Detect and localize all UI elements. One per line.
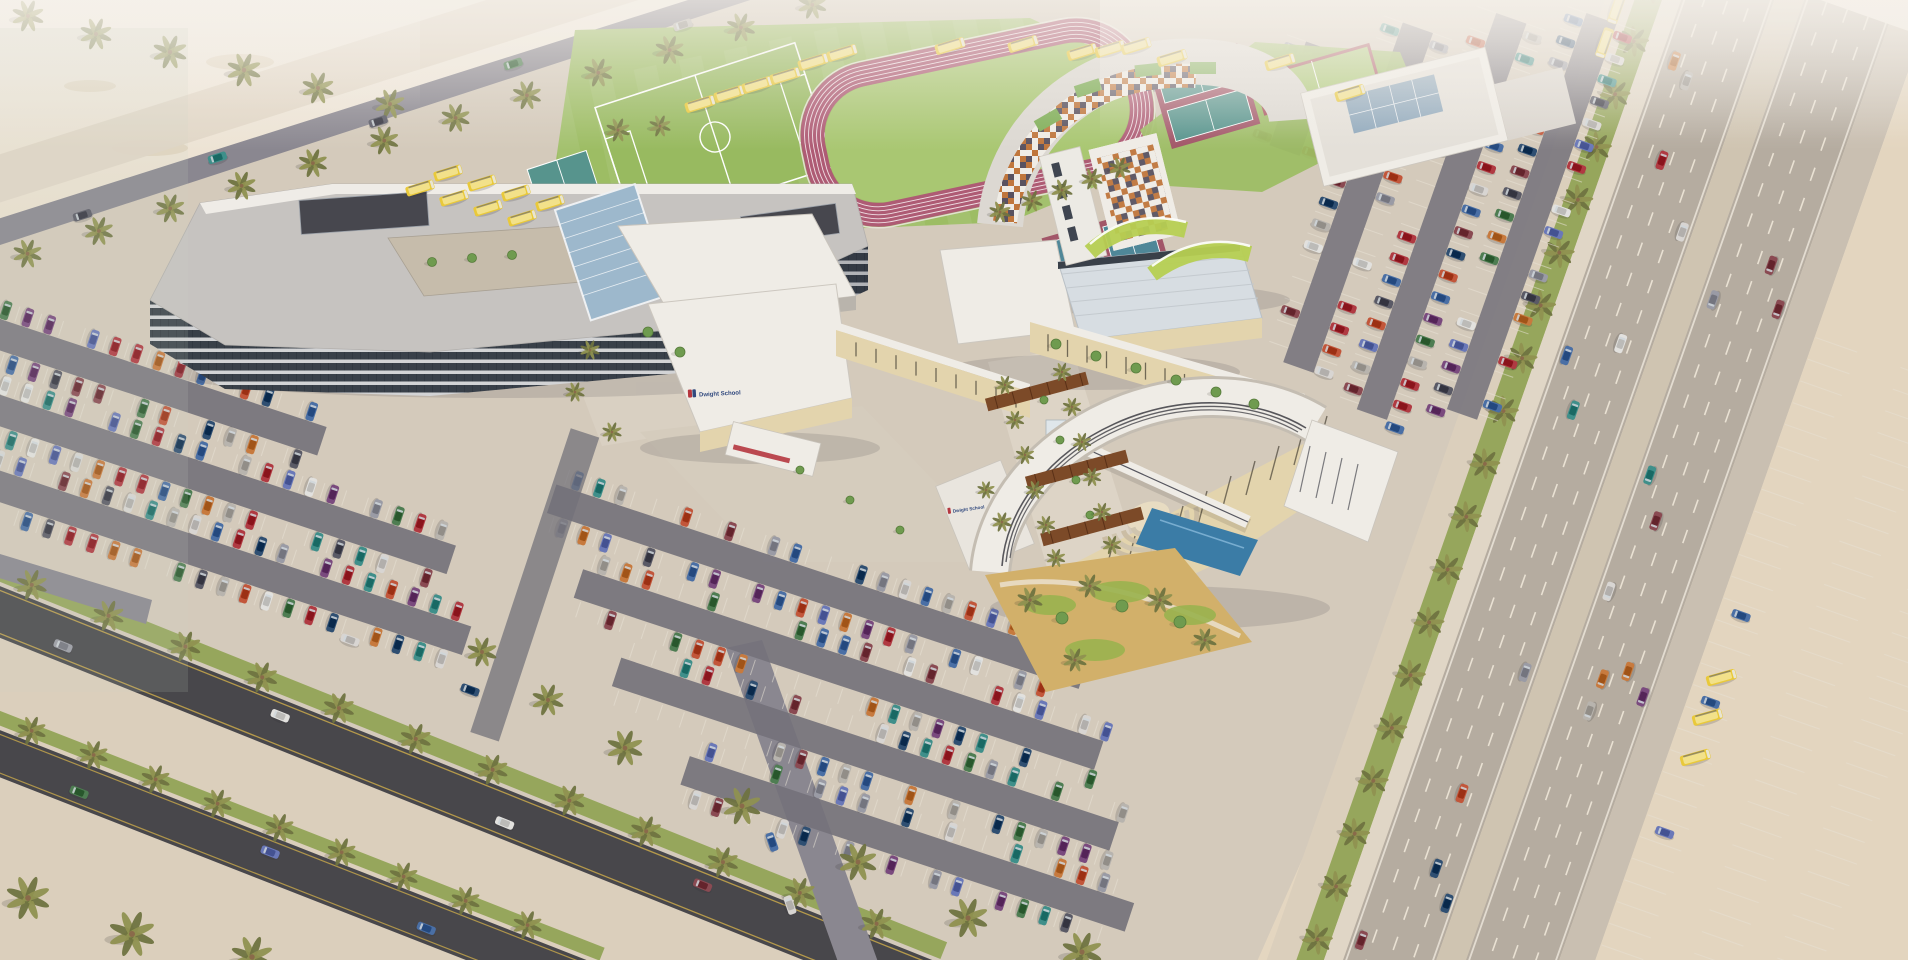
campus-aerial-rendering: Dwight School Dwight School	[0, 0, 1908, 960]
palm-crown	[154, 777, 158, 781]
tree-canopy	[846, 496, 854, 504]
rendered-image: Dwight School Dwight School	[0, 0, 1908, 960]
palm-crown	[574, 391, 577, 394]
tree-canopy	[1072, 476, 1080, 484]
tree-canopy	[468, 254, 477, 263]
palm-crown	[1061, 371, 1063, 373]
palm-crown	[965, 915, 970, 920]
tree-canopy	[1249, 399, 1259, 409]
palm-crown	[491, 768, 495, 772]
palm-crown	[1031, 200, 1034, 203]
palm-crown	[875, 922, 879, 926]
palm-crown	[1079, 949, 1084, 954]
palm-crown	[1091, 178, 1094, 181]
tree-canopy	[1056, 436, 1064, 444]
palm-crown	[623, 746, 628, 751]
palm-crown	[1119, 167, 1122, 170]
tree-canopy	[508, 251, 517, 260]
palm-crown	[1045, 524, 1047, 526]
palm-crown	[1004, 384, 1006, 386]
tree-canopy	[1051, 339, 1061, 349]
palm-crown	[985, 489, 987, 491]
tree-canopy	[1116, 600, 1128, 612]
palm-crown	[129, 931, 135, 937]
palm-crown	[311, 161, 315, 165]
palm-crown	[216, 802, 220, 806]
palm-crown	[337, 706, 341, 710]
school-crest-icon	[692, 389, 696, 397]
palm-crown	[644, 829, 648, 833]
palm-crown	[25, 895, 31, 901]
palm-crown	[1158, 598, 1161, 601]
palm-crown	[30, 729, 34, 733]
tree-canopy	[1131, 363, 1141, 373]
palm-crown	[1203, 638, 1206, 641]
tree-canopy	[1040, 396, 1048, 404]
palm-crown	[1034, 489, 1036, 491]
tree-canopy	[896, 526, 904, 534]
tree-canopy	[1056, 612, 1068, 624]
tree-canopy	[428, 258, 437, 267]
palm-crown	[999, 211, 1002, 214]
tree-canopy	[1174, 616, 1186, 628]
palm-crown	[740, 804, 745, 809]
palm-crown	[611, 431, 614, 434]
palm-crown	[402, 875, 406, 879]
palm-crown	[1028, 598, 1031, 601]
palm-crown	[92, 753, 96, 757]
palm-crown	[480, 650, 484, 654]
tree-canopy	[1171, 375, 1181, 385]
palm-crown	[414, 737, 418, 741]
tree-canopy	[675, 347, 685, 357]
palm-crown	[260, 675, 264, 679]
tree-canopy	[643, 327, 653, 337]
palm-crown	[589, 349, 592, 352]
top-right-haze	[1100, 0, 1908, 140]
palm-crown	[1111, 544, 1113, 546]
palm-crown	[1071, 406, 1073, 408]
left-glare-band	[0, 28, 188, 692]
palm-crown	[1091, 476, 1093, 478]
palm-crown	[721, 860, 725, 864]
palm-crown	[798, 891, 802, 895]
palm-crown	[856, 860, 861, 865]
palm-crown	[240, 184, 244, 188]
tree-canopy	[1211, 387, 1221, 397]
palm-crown	[464, 899, 468, 903]
palm-crown	[278, 826, 282, 830]
school-crest-icon	[688, 389, 692, 397]
palm-crown	[1014, 419, 1016, 421]
palm-crown	[1001, 521, 1004, 524]
palm-crown	[1101, 511, 1103, 513]
palm-crown	[567, 798, 571, 802]
palm-crown	[546, 698, 550, 702]
palm-crown	[1024, 454, 1026, 456]
palm-crown	[526, 923, 530, 927]
palm-crown	[340, 850, 344, 854]
palm-crown	[1055, 557, 1057, 559]
tree-canopy	[1091, 351, 1101, 361]
palm-crown	[1061, 189, 1064, 192]
palm-crown	[249, 954, 254, 959]
palm-crown	[1073, 658, 1076, 661]
palm-crown	[1088, 584, 1091, 587]
tree-canopy	[796, 466, 804, 474]
palm-crown	[1081, 441, 1083, 443]
